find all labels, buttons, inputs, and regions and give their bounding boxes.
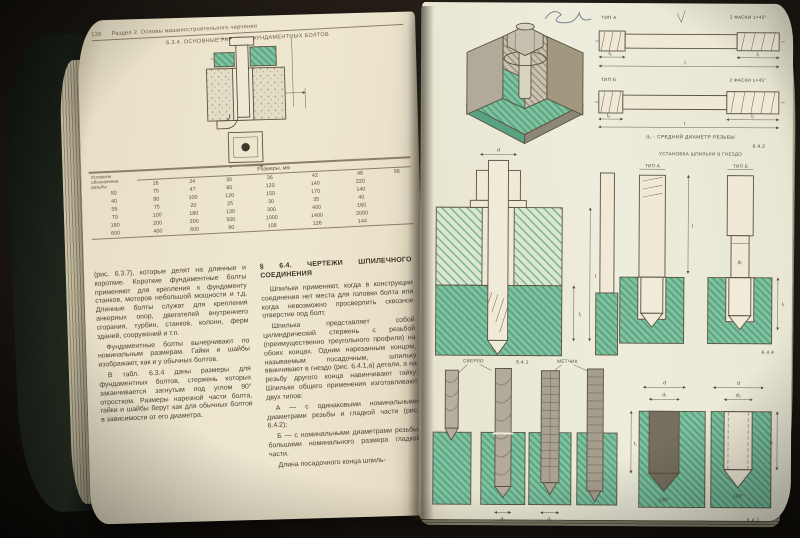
svg-text:l₁: l₁ xyxy=(782,302,785,308)
stud-a-shank xyxy=(625,34,737,49)
dim-l: l xyxy=(595,274,596,280)
section-heading: § 6.4. ЧЕРТЕЖИ ШПИЛЕЧНОГО СОЕДИНЕНИЯ xyxy=(260,256,413,281)
figure-drill-tap: СВЕРЛО МЕТЧИК xyxy=(425,354,622,523)
dim-d: d xyxy=(497,147,500,153)
tip-a-label: ТИП А xyxy=(601,15,617,20)
text-column-2: § 6.4. ЧЕРТЕЖИ ШПИЛЕЧНОГО СОЕДИНЕНИЯ Шпи… xyxy=(260,256,422,473)
dim-l1: l₁ xyxy=(757,52,760,58)
right-page: ТИП А 2 ФАСКИ 1×45° l₀ l₁ l ТИП Б 2 ФАСК… xyxy=(419,2,794,521)
dim-l0: l₀ xyxy=(608,51,611,57)
stud-b-shank xyxy=(623,95,727,110)
paragraph: В табл. 6.3.4 даны размеры для фундамент… xyxy=(99,365,253,425)
drill-long xyxy=(495,368,512,486)
svg-text:l₀: l₀ xyxy=(607,113,610,119)
surface-finish-icon xyxy=(677,10,685,22)
page-number: 136 xyxy=(91,32,102,39)
paragraph: Шпилька представляет собой цилиндрически… xyxy=(263,316,419,403)
angle-label: 120° xyxy=(659,497,669,503)
tip-b-label: ТИП Б xyxy=(733,164,748,169)
text-column-1: (рис. 6.3.7), которые делят на длинные и… xyxy=(94,264,256,481)
bolt-nut xyxy=(230,37,254,46)
dim-d2: d₂ xyxy=(738,260,743,266)
drill-label: СВЕРЛО xyxy=(463,358,484,363)
tip-a-label: ТИП А xyxy=(645,163,661,168)
dim-l1: l₁ xyxy=(579,312,582,318)
dim-l: l xyxy=(684,60,685,66)
svg-text:d: d xyxy=(663,380,666,386)
machine-foot-left xyxy=(214,52,234,67)
svg-text:l₁: l₁ xyxy=(634,441,637,447)
figure-install-socket: УСТАНОВКА ШПИЛЬКИ В ГНЕЗДО ТИП А ТИП Б l… xyxy=(612,147,793,356)
install-heading: УСТАНОВКА ШПИЛЬКИ В ГНЕЗДО xyxy=(659,151,742,156)
svg-text:d₁: d₁ xyxy=(547,517,552,523)
stud-a xyxy=(639,175,666,277)
svg-text:d: d xyxy=(737,381,740,387)
table-stub-header: Условное обозначение резьбы xyxy=(89,171,138,191)
svg-text:l: l xyxy=(684,121,685,127)
bolt-shank xyxy=(236,45,250,117)
dim-d1: d₁ xyxy=(500,516,505,522)
svg-text:d₂: d₂ xyxy=(736,393,741,399)
figure-stud-assembly: d l₁ l 6.4.1 xyxy=(427,142,618,365)
block-1 xyxy=(433,432,471,504)
chamfer-note-2: 2 ФАСКИ 1×45° xyxy=(730,78,767,83)
svg-text:l₁: l₁ xyxy=(751,114,754,120)
paragraph: Шпильки применяют, когда в конструкции с… xyxy=(261,279,415,322)
paragraph: (рис. 6.3.7), которые делят на длинные и… xyxy=(94,264,249,342)
size-table: Условное обозначение резьбы Размеры, мм … xyxy=(89,156,414,240)
svg-text:l₂: l₂ xyxy=(770,440,773,446)
svg-text:d₁: d₁ xyxy=(662,392,667,398)
photo-background: 136 Раздел 2. Основы машиностроительного… xyxy=(0,0,800,538)
machine-foot-right xyxy=(250,46,277,66)
fig-number: 6.4.3 xyxy=(747,518,760,524)
col-header: 56 xyxy=(382,167,411,177)
svg-text:120°: 120° xyxy=(733,494,743,500)
threaded-hole xyxy=(649,411,679,473)
tap-label: МЕТЧИК xyxy=(557,359,578,364)
chamfer-note: 2 ФАСКИ 1×45° xyxy=(730,15,767,20)
tip-b-label: ТИП Б xyxy=(601,77,616,82)
figure-socket-holes: d d₁ 120° l₁ d d₂ 120° l xyxy=(627,375,783,526)
fig-number: 6.4.4 xyxy=(762,350,775,356)
text-columns: (рис. 6.3.7), которые делят на длинные и… xyxy=(94,256,422,481)
figure-isometric-stud xyxy=(437,12,613,145)
figure-foundation-bolt xyxy=(173,30,329,166)
svg-text:l: l xyxy=(692,223,693,229)
fig-caption: d₂ - СРЕДНИЙ ДИАМЕТР РЕЗЬБЫ xyxy=(646,132,735,140)
stud-b xyxy=(727,176,753,236)
plan-view-bolt xyxy=(241,143,250,152)
left-page: 136 Раздел 2. Основы машиностроительного… xyxy=(77,11,429,524)
figure-stud-types: ТИП А 2 ФАСКИ 1×45° l₀ l₁ l ТИП Б 2 ФАСК… xyxy=(593,9,790,150)
